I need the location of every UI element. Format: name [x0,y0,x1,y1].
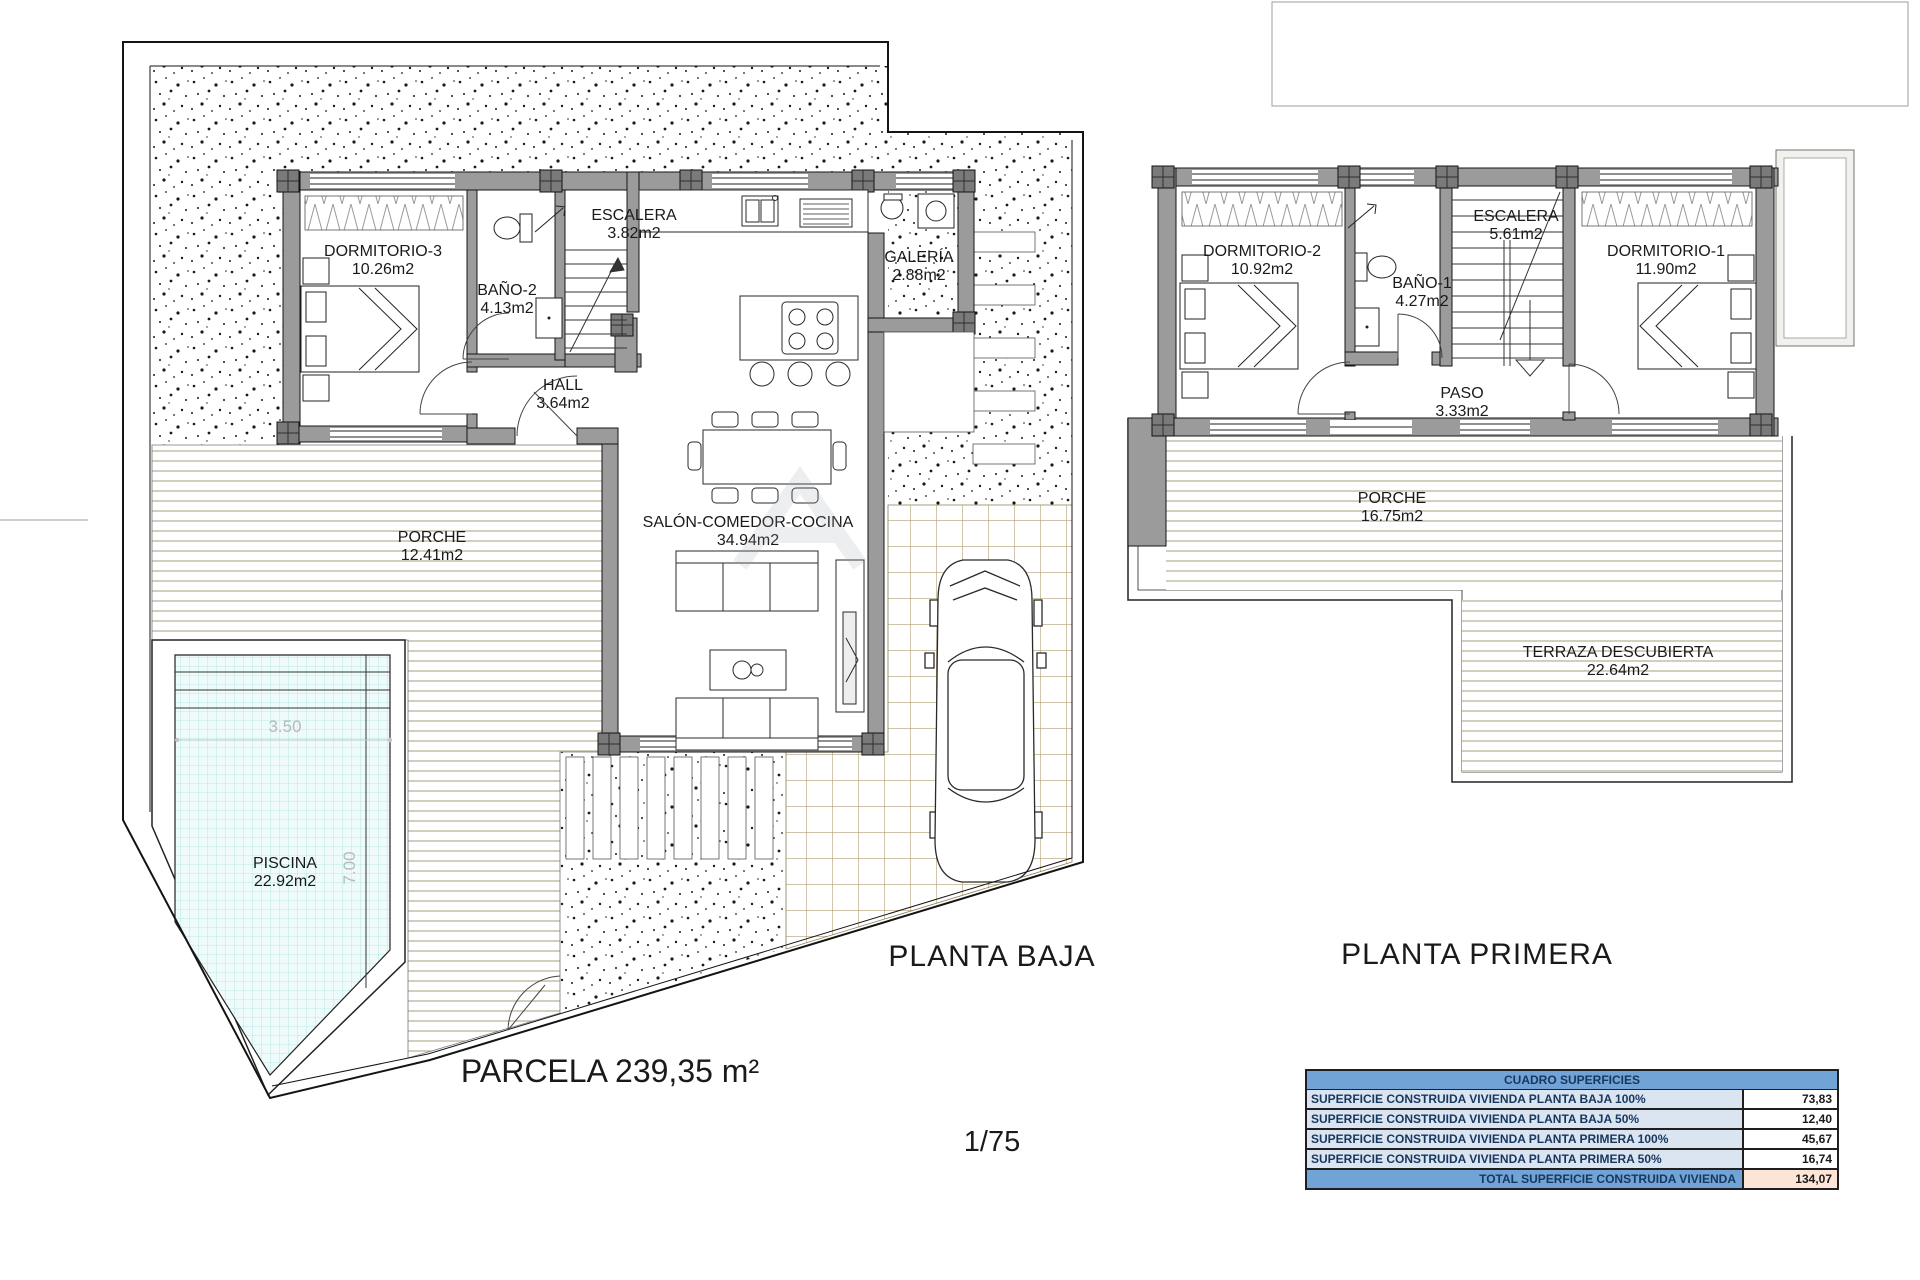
area-dormitorio1: 11.90m2 [1635,261,1696,278]
row-label: SUPERFICIE CONSTRUIDA VIVIENDA PLANTA BA… [1307,1090,1742,1108]
total-label: TOTAL SUPERFICIE CONSTRUIDA VIVIENDA [1307,1170,1742,1188]
label-escalera-1f: ESCALERA [1473,208,1559,225]
first-floor-plan: DORMITORIO-2 10.92m2 BAÑO-1 4.27m2 ESCAL… [1128,150,1854,782]
parcel-area-label: PARCELA 239,35 m² [461,1053,760,1089]
label-galeria: GALERÍA [884,247,954,266]
area-escalera-gf: 3.82m2 [607,225,660,242]
table-row: SUPERFICIE CONSTRUIDA VIVIENDA PLANTA BA… [1307,1110,1837,1130]
total-value: 134,07 [1742,1170,1837,1188]
row-label: SUPERFICIE CONSTRUIDA VIVIENDA PLANTA PR… [1307,1150,1742,1168]
label-escalera-gf: ESCALERA [591,207,677,224]
pool-dim-width: 3.50 [268,717,301,736]
row-value: 45,67 [1742,1130,1837,1148]
porch-pillar [1128,418,1166,546]
row-value: 12,40 [1742,1110,1837,1128]
area-dormitorio3: 10.26m2 [352,261,414,278]
car-icon [925,560,1046,882]
label-terraza: TERRAZA DESCUBIERTA [1523,644,1714,661]
first-floor-title: PLANTA PRIMERA [1341,938,1613,971]
closet-hatch-dorm3 [305,196,463,230]
area-hall: 3.64m2 [536,395,589,412]
balcony-outline [1776,150,1854,346]
row-label: SUPERFICIE CONSTRUIDA VIVIENDA PLANTA BA… [1307,1110,1742,1128]
area-escalera-1f: 5.61m2 [1489,226,1542,243]
closet-hatch-dorm2 [1182,192,1342,226]
area-bano2: 4.13m2 [480,300,533,317]
label-bano1: BAÑO-1 [1392,272,1452,292]
area-galeria: 2.88m2 [892,267,945,284]
row-label: SUPERFICIE CONSTRUIDA VIVIENDA PLANTA PR… [1307,1130,1742,1148]
label-hall: HALL [543,377,583,394]
table-row: SUPERFICIE CONSTRUIDA VIVIENDA PLANTA BA… [1307,1090,1837,1110]
area-piscina: 22.92m2 [254,873,316,890]
closet-hatch-dorm1 [1582,192,1752,226]
label-paso: PASO [1440,385,1483,402]
surface-table-title: CUADRO SUPERFICIES [1307,1071,1837,1090]
area-paso: 3.33m2 [1435,403,1488,420]
label-piscina: PISCINA [253,855,317,872]
area-dormitorio2: 10.92m2 [1231,261,1293,278]
label-porche-1f: PORCHE [1358,490,1426,507]
row-value: 16,74 [1742,1150,1837,1168]
pool-dim-length: 7.00 [340,851,359,884]
surface-table: CUADRO SUPERFICIES SUPERFICIE CONSTRUIDA… [1305,1069,1839,1190]
table-row: SUPERFICIE CONSTRUIDA VIVIENDA PLANTA PR… [1307,1130,1837,1150]
table-row: SUPERFICIE CONSTRUIDA VIVIENDA PLANTA PR… [1307,1150,1837,1170]
table-total-row: TOTAL SUPERFICIE CONSTRUIDA VIVIENDA 134… [1307,1170,1837,1188]
galeria-terrace [884,332,974,432]
label-porche-gf: PORCHE [398,529,466,546]
row-value: 73,83 [1742,1090,1837,1108]
porch-deck-1f [1166,436,1782,590]
label-bano2: BAÑO-2 [477,279,537,299]
area-bano1: 4.27m2 [1395,293,1448,310]
scale-label: 1/75 [964,1126,1020,1158]
area-porche-1f: 16.75m2 [1361,508,1423,525]
ground-floor-title: PLANTA BAJA [888,940,1095,973]
label-dormitorio1: DORMITORIO-1 [1607,243,1725,260]
label-dormitorio2: DORMITORIO-2 [1203,243,1321,260]
area-porche-gf: 12.41m2 [401,547,463,564]
terraza-deck [1462,600,1782,772]
title-block [1272,2,1908,106]
label-dormitorio3: DORMITORIO-3 [324,243,442,260]
area-terraza: 22.64m2 [1587,662,1649,679]
